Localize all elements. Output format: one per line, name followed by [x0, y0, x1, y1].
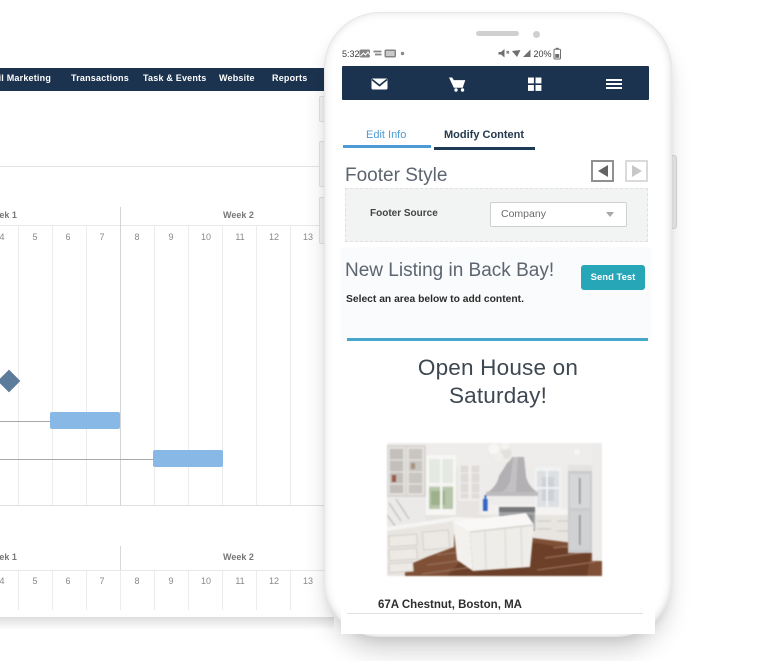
svg-text:5:32: 5:32 — [342, 49, 360, 59]
svg-text:20%: 20% — [534, 49, 552, 59]
